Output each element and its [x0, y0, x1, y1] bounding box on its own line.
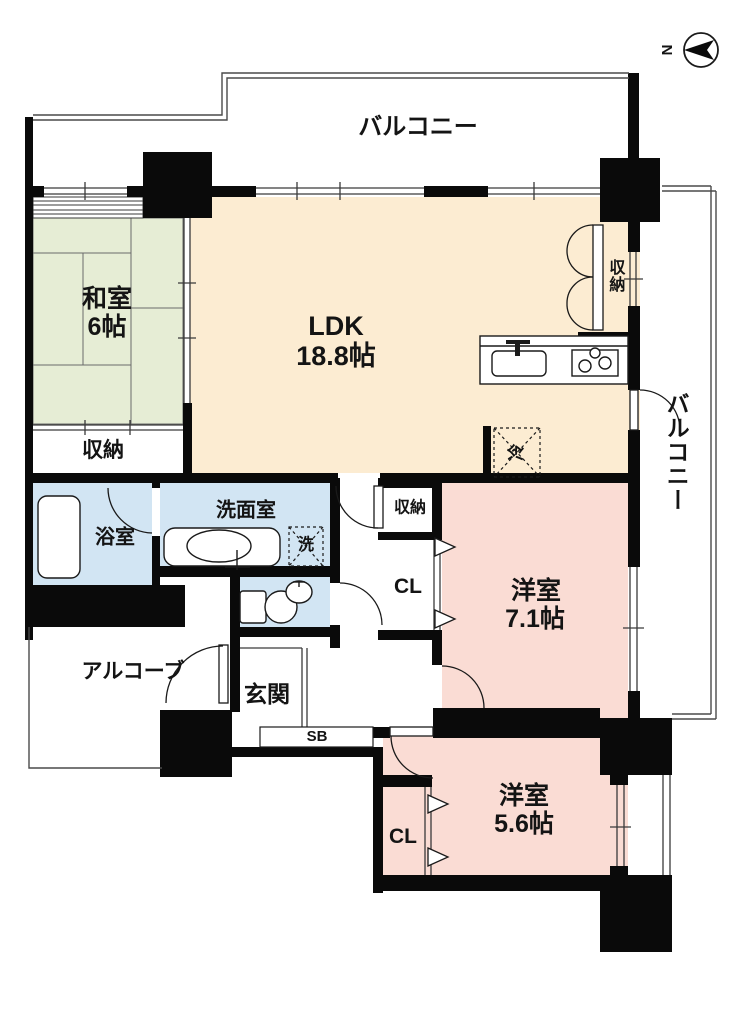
hall-closet-label: 収納: [394, 501, 426, 518]
floor-plan-drawing: [0, 0, 751, 1024]
washing-machine-label: 洗: [298, 538, 314, 555]
refrigerator-label: 冷: [508, 444, 526, 461]
balcony-top-label: バルコニー: [358, 114, 478, 139]
ldk-room: [190, 197, 640, 473]
toilet-tank: [240, 591, 266, 623]
closet-1-label: CL: [394, 576, 422, 598]
closet-2-label: CL: [389, 826, 417, 848]
western-room-2-area: 5.6帖: [494, 811, 554, 837]
compass: [684, 33, 718, 67]
floor-plan: N バルコニー バルコニー 和室 6帖 LDK 18.8帖 洋室 7.1帖 洋室…: [0, 0, 751, 1024]
ldk-closet-doors: [593, 225, 603, 330]
ldk-closet-label: 収納: [606, 259, 623, 293]
western-room-1-name: 洋室: [511, 578, 561, 604]
western-room-2-door: [390, 727, 433, 736]
washitsu-name: 和室: [82, 286, 132, 312]
washitsu-closet-label: 収納: [82, 440, 124, 462]
toilet-door-arc: [340, 583, 382, 625]
bathroom-label: 浴室: [95, 528, 135, 549]
balcony-right-label: バルコニー: [664, 392, 688, 512]
alcove-outline: [29, 627, 162, 768]
washitsu-area: 6帖: [88, 314, 127, 340]
washroom-label: 洗面室: [216, 501, 276, 522]
shoe-box-label: SB: [307, 729, 328, 745]
hall-door: [374, 486, 383, 528]
western-room-2-name: 洋室: [499, 783, 549, 809]
vanity-basin: [187, 530, 251, 562]
ldk-area: 18.8帖: [296, 342, 376, 370]
western-room-1-area: 7.1帖: [505, 606, 565, 632]
entrance-door: [219, 645, 228, 703]
bathtub: [38, 496, 80, 578]
alcove-label: アルコーブ: [81, 661, 184, 683]
washitsu-shelf-band: [33, 197, 143, 218]
entrance-label: 玄関: [244, 682, 290, 706]
balcony-door: [630, 390, 638, 430]
compass-north-label: N: [660, 45, 676, 56]
ldk-name: LDK: [308, 312, 364, 340]
